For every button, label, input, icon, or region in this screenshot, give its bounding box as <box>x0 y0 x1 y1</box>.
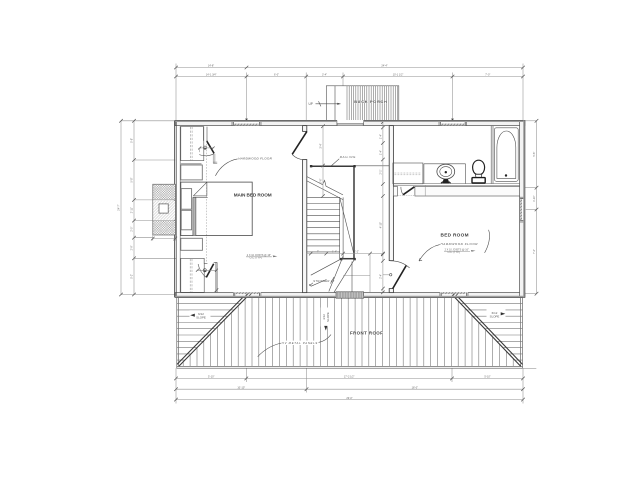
svg-text:3'-4": 3'-4" <box>322 73 327 76</box>
svg-text:7'-0": 7'-0" <box>485 73 490 76</box>
svg-text:14'-8": 14'-8" <box>208 64 214 67</box>
svg-text:4'-10": 4'-10" <box>379 222 382 228</box>
svg-text:2'-9": 2'-9" <box>131 245 134 250</box>
svg-text:5'-10": 5'-10" <box>484 376 490 379</box>
svg-text:7": 7" <box>317 251 319 254</box>
svg-text:14'-1 3/4": 14'-1 3/4" <box>206 73 217 76</box>
svg-text:2'-1": 2'-1" <box>379 169 382 174</box>
svg-text:24'-4": 24'-4" <box>381 64 387 67</box>
svg-text:5V METAL PANELS: 5V METAL PANELS <box>282 341 317 345</box>
svg-text:5'-8": 5'-8" <box>131 177 134 182</box>
svg-text:SLOPE: SLOPE <box>490 315 500 319</box>
svg-text:17'-2 1/2": 17'-2 1/2" <box>344 376 355 379</box>
svg-text:MAIN BED ROOM: MAIN BED ROOM <box>234 192 272 197</box>
svg-text:7'-0": 7'-0" <box>533 249 536 254</box>
svg-text:2'-11": 2'-11" <box>131 207 134 213</box>
svg-text:10'-10": 10'-10" <box>237 386 245 389</box>
svg-text:BED ROOM: BED ROOM <box>441 232 469 237</box>
svg-text:UP: UP <box>309 102 313 106</box>
svg-text:SLOPE: SLOPE <box>196 316 206 320</box>
svg-text:29'-0": 29'-0" <box>346 397 352 400</box>
svg-text:1'-4": 1'-4" <box>379 150 382 155</box>
svg-text:3'-4": 3'-4" <box>319 143 322 148</box>
svg-text:5'-10": 5'-10" <box>208 376 214 379</box>
svg-text:RAILING: RAILING <box>340 155 356 159</box>
svg-text:2'-5": 2'-5" <box>131 227 134 232</box>
svg-text:1'-10": 1'-10" <box>533 195 536 201</box>
svg-text:6'-0": 6'-0" <box>274 73 279 76</box>
svg-text:2'-4": 2'-4" <box>379 274 382 279</box>
svg-text:1'-4": 1'-4" <box>379 134 382 139</box>
svg-text:2'-6": 2'-6" <box>319 178 322 183</box>
svg-text:2'-2": 2'-2" <box>354 251 359 254</box>
svg-text:5'-8": 5'-8" <box>131 138 134 143</box>
svg-text:5'-2": 5'-2" <box>131 274 134 279</box>
svg-text:10'-1 1/2": 10'-1 1/2" <box>393 73 404 76</box>
svg-text:24'-7": 24'-7" <box>118 204 121 210</box>
svg-text:SLOPE: SLOPE <box>326 312 330 322</box>
svg-text:HARDWOOD FLOOR: HARDWOOD FLOOR <box>441 242 479 246</box>
svg-text:HARDWOOD FLOOR: HARDWOOD FLOOR <box>238 156 272 160</box>
svg-text:BACK PORCH: BACK PORCH <box>354 99 387 104</box>
svg-text:FRONT ROOF: FRONT ROOF <box>350 331 383 336</box>
svg-text:1'-4": 1'-4" <box>332 251 337 254</box>
svg-text:18'-0": 18'-0" <box>412 386 418 389</box>
svg-text:5'-6": 5'-6" <box>533 152 536 157</box>
